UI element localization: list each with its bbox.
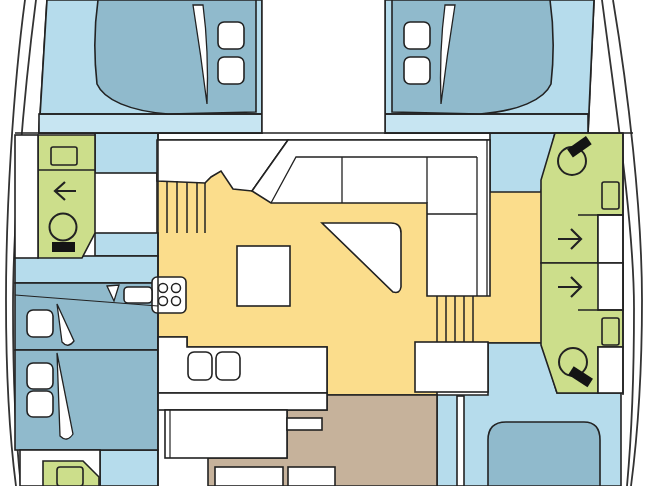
pillow [27, 310, 53, 337]
pillow [27, 363, 53, 389]
chart-seat [415, 342, 488, 392]
cockpit-notch [287, 418, 322, 430]
port-corridor-aft [95, 233, 158, 256]
floorplan-svg [0, 0, 648, 486]
step-gap [457, 396, 464, 486]
pillow [218, 57, 244, 84]
floorplan-page [0, 0, 648, 486]
starboard-vanity-fwd [598, 215, 623, 263]
galley-sink-left [188, 352, 212, 380]
dinette-table [237, 246, 290, 306]
foredeck-center [262, 0, 385, 133]
port-bed-foot-strip [39, 114, 262, 133]
pillow [218, 22, 244, 49]
port-corridor-band [15, 256, 158, 283]
port-corridor-fwd [95, 133, 158, 173]
toilet-icon [50, 214, 77, 241]
pillow [27, 391, 53, 417]
cockpit-bench [165, 410, 287, 458]
head-aft-starboard-sink-icon [602, 318, 619, 345]
cockpit-stool-right [288, 467, 335, 486]
toilet-seat-icon [52, 242, 75, 252]
galley-sink-right [216, 352, 240, 380]
stove-unit [152, 277, 186, 313]
pillow [404, 57, 430, 84]
head-aft-port-sink [57, 467, 83, 486]
starboard-vanity-mid [598, 263, 623, 310]
cockpit-stool-left [215, 467, 283, 486]
port-side-deck-strip [15, 135, 38, 258]
aft-cabin-starboard-bed [488, 422, 600, 486]
port-aft-floor [100, 450, 158, 486]
starboard-vanity-aft [598, 347, 623, 393]
shelf-tray [124, 287, 152, 303]
cockpit-walkway [158, 393, 327, 410]
starboard-bed-foot-strip [385, 114, 588, 133]
head-forward-port-sink [51, 147, 77, 165]
pillow [404, 22, 430, 49]
head-forward-starboard-sink-icon [602, 182, 619, 209]
